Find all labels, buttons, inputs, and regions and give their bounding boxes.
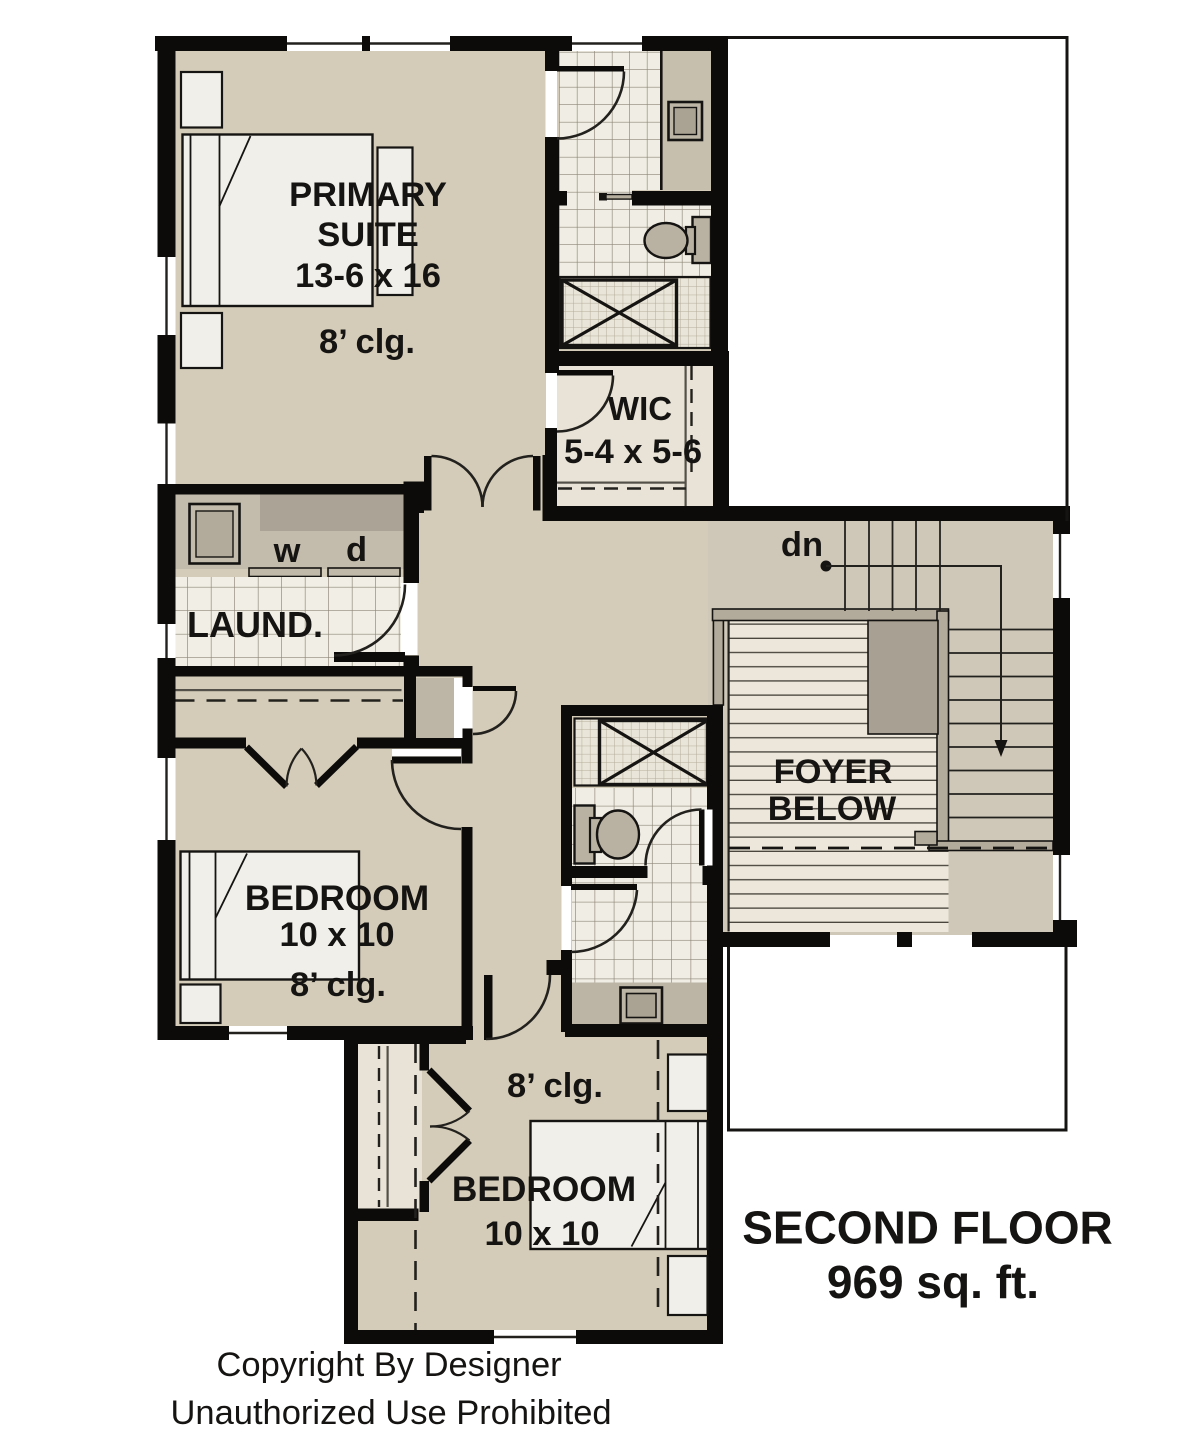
svg-text:BEDROOM: BEDROOM (452, 1170, 636, 1209)
svg-text:8’ clg.: 8’ clg. (290, 966, 386, 1004)
svg-text:10 x 10: 10 x 10 (484, 1215, 599, 1253)
svg-text:8’ clg.: 8’ clg. (507, 1067, 603, 1105)
svg-text:8’ clg.: 8’ clg. (319, 323, 415, 361)
svg-text:WIC: WIC (608, 390, 672, 427)
svg-text:BEDROOM: BEDROOM (245, 879, 429, 918)
svg-text:Copyright By Designer: Copyright By Designer (217, 1346, 562, 1384)
svg-text:SECOND FLOOR: SECOND FLOOR (742, 1202, 1113, 1254)
svg-text:PRIMARY: PRIMARY (289, 176, 447, 214)
svg-text:LAUND.: LAUND. (187, 604, 323, 645)
svg-text:SUITE: SUITE (317, 216, 419, 254)
svg-text:dn: dn (781, 526, 823, 564)
svg-text:969 sq. ft.: 969 sq. ft. (827, 1256, 1039, 1308)
svg-text:w: w (273, 532, 301, 570)
svg-text:5-4 x 5-6: 5-4 x 5-6 (564, 433, 702, 471)
svg-text:d: d (346, 531, 367, 569)
svg-text:FOYER: FOYER (774, 753, 893, 791)
svg-text:10 x 10: 10 x 10 (279, 916, 394, 954)
svg-text:13-6 x 16: 13-6 x 16 (295, 257, 441, 295)
svg-text:Unauthorized Use Prohibited: Unauthorized Use Prohibited (171, 1394, 612, 1432)
svg-text:BELOW: BELOW (768, 790, 897, 828)
